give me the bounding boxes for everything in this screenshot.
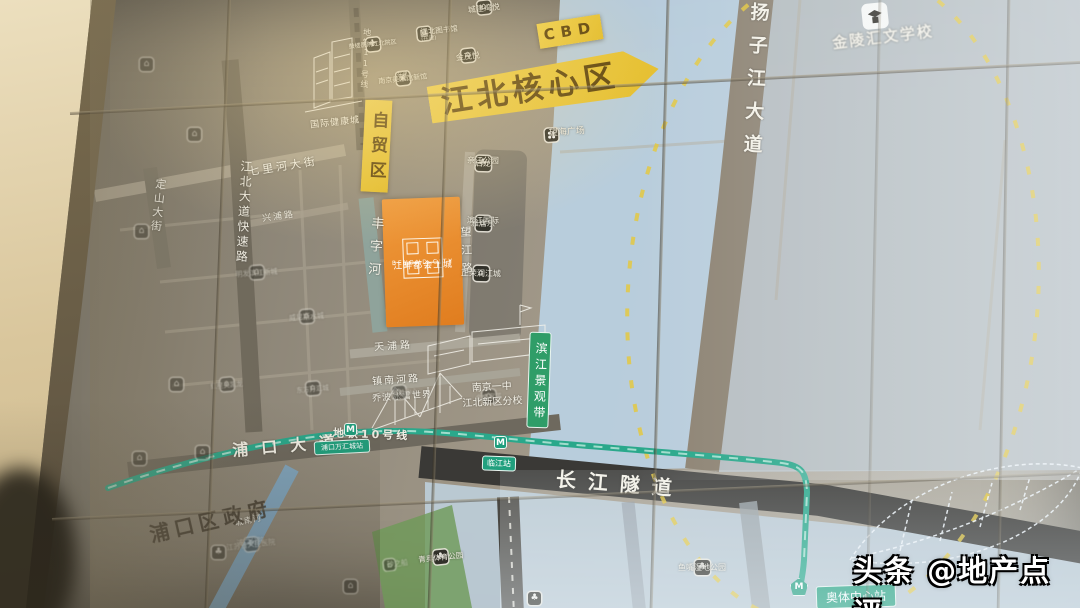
poi-marker-icon: ⌂ <box>188 128 201 141</box>
project-marker: BEYOND CITY 江畔都会上城 <box>382 197 464 328</box>
poi-marker-icon: ⌂ <box>140 58 153 71</box>
road-label-tianpu: 天浦路 <box>374 336 414 354</box>
poi-panel <box>469 149 528 341</box>
hotel-icon: ⌂ <box>344 580 357 593</box>
tree-icon: ♣ <box>212 546 225 559</box>
video-wall-photo: 江北核心区 CBD 自贸区 BEYOND CITY 江畔都会上城 扬子江大道 长… <box>0 0 1080 608</box>
poi-marker-icon: ⌂ <box>135 225 148 238</box>
label-school-no1: 南京一中 江北新区分校 <box>461 376 522 409</box>
road-label-wangjiang: 望江路 <box>457 226 475 297</box>
poi-marker-icon: ⌂ <box>133 452 146 465</box>
station-linjiang: 临江站 <box>482 455 517 471</box>
poi-marker-icon: ⌂ <box>170 378 183 391</box>
free-trade-zone-badge: 自贸区 <box>361 99 393 192</box>
binjiang-belt-label: 滨江景观带 <box>526 332 551 429</box>
station-wanhuicheng: 浦口万汇城站 <box>314 439 371 456</box>
poi-marker-icon: ⌂ <box>196 446 209 459</box>
watermark: 头条 @地产点评 <box>853 548 1080 608</box>
tree-icon: ♣ <box>528 592 541 605</box>
metro-station-icon: M <box>494 436 507 449</box>
metro-station-icon: M <box>344 423 357 436</box>
project-name: 江畔都会上城 <box>393 256 453 271</box>
